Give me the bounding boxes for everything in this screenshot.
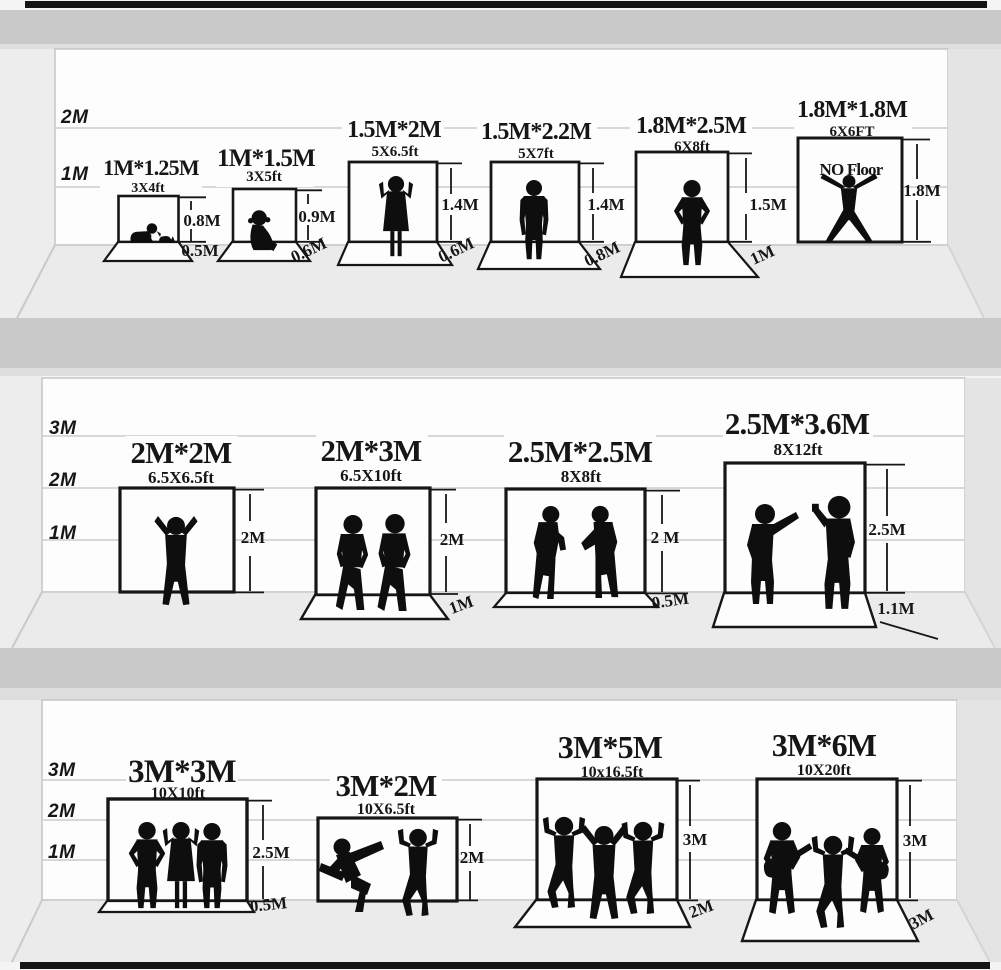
svg-text:0.8M: 0.8M: [183, 211, 220, 230]
svg-text:5X6.5ft: 5X6.5ft: [371, 144, 418, 160]
svg-text:8X8ft: 8X8ft: [561, 467, 602, 486]
svg-text:6.5X10ft: 6.5X10ft: [340, 466, 402, 485]
svg-text:3M: 3M: [683, 830, 708, 849]
svg-text:1M*1.5M: 1M*1.5M: [217, 145, 315, 172]
svg-text:0.9M: 0.9M: [298, 207, 335, 226]
svg-text:2.5M*2.5M: 2.5M*2.5M: [508, 434, 653, 469]
svg-text:2.5M*3.6M: 2.5M*3.6M: [725, 406, 870, 441]
svg-text:2M: 2M: [241, 528, 266, 547]
svg-text:1.5M: 1.5M: [749, 195, 786, 214]
svg-text:3M: 3M: [48, 760, 76, 781]
svg-text:2M: 2M: [47, 801, 76, 822]
svg-text:2M: 2M: [440, 530, 465, 549]
svg-text:3M*5M: 3M*5M: [558, 729, 663, 765]
svg-text:1.8M: 1.8M: [903, 181, 940, 200]
svg-text:1M*1.25M: 1M*1.25M: [103, 155, 200, 180]
svg-text:3M: 3M: [49, 418, 77, 439]
svg-text:8X12ft: 8X12ft: [773, 440, 822, 459]
svg-text:3X4ft: 3X4ft: [131, 181, 165, 196]
svg-text:5X7ft: 5X7ft: [518, 146, 554, 162]
svg-text:10X20ft: 10X20ft: [797, 762, 852, 779]
svg-text:2M*2M: 2M*2M: [130, 435, 232, 470]
svg-text:3M: 3M: [903, 831, 928, 850]
svg-text:0.5M: 0.5M: [249, 893, 288, 916]
svg-text:1.8M*2.5M: 1.8M*2.5M: [636, 113, 746, 139]
svg-text:2 M: 2 M: [651, 528, 680, 547]
svg-text:2.5M: 2.5M: [252, 843, 289, 862]
svg-text:1.4M: 1.4M: [441, 195, 478, 214]
svg-text:1.4M: 1.4M: [587, 195, 624, 214]
svg-text:1.8M*1.8M: 1.8M*1.8M: [797, 97, 907, 123]
svg-text:2M*3M: 2M*3M: [320, 433, 422, 468]
svg-text:1M: 1M: [61, 164, 89, 185]
svg-text:3X5ft: 3X5ft: [246, 169, 282, 185]
svg-text:1.1M: 1.1M: [877, 599, 914, 618]
svg-text:1.5M*2.2M: 1.5M*2.2M: [481, 119, 591, 145]
svg-text:2M: 2M: [60, 107, 89, 128]
svg-text:10X6.5ft: 10X6.5ft: [357, 801, 416, 818]
svg-text:3M*6M: 3M*6M: [772, 727, 877, 763]
svg-text:1M: 1M: [48, 842, 76, 863]
svg-text:1.5M*2M: 1.5M*2M: [347, 117, 441, 143]
svg-text:3M*2M: 3M*2M: [335, 768, 437, 803]
svg-text:2.5M: 2.5M: [868, 520, 905, 539]
svg-text:0.5M: 0.5M: [181, 241, 218, 260]
svg-text:2M: 2M: [460, 848, 485, 867]
svg-text:2M: 2M: [48, 470, 77, 491]
svg-text:6.5X6.5ft: 6.5X6.5ft: [148, 468, 214, 487]
svg-text:1M: 1M: [49, 523, 77, 544]
